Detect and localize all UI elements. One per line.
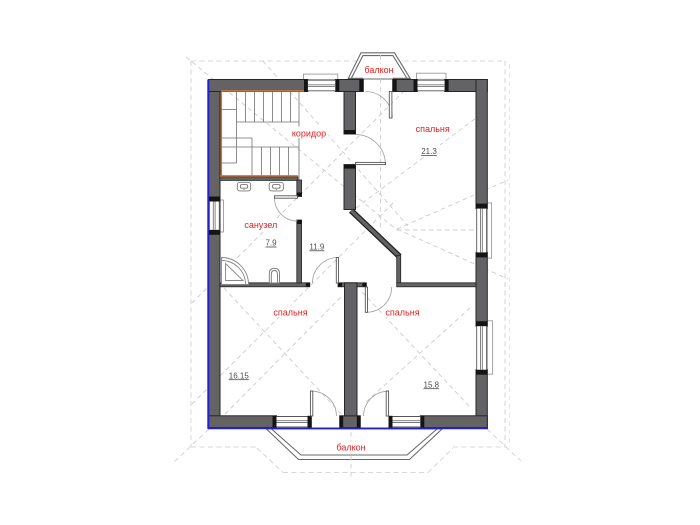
svg-text:балкон: балкон bbox=[364, 65, 393, 75]
svg-text:спальня: спальня bbox=[273, 307, 307, 317]
svg-text:11.9: 11.9 bbox=[309, 242, 325, 251]
svg-text:21.3: 21.3 bbox=[421, 147, 437, 156]
svg-text:спальня: спальня bbox=[385, 308, 419, 318]
svg-text:коридор: коридор bbox=[292, 128, 326, 138]
svg-text:санузел: санузел bbox=[244, 220, 277, 230]
svg-text:7.9: 7.9 bbox=[265, 239, 277, 248]
svg-text:балкон: балкон bbox=[336, 442, 365, 452]
svg-text:спальня: спальня bbox=[416, 124, 450, 134]
svg-text:15.8: 15.8 bbox=[424, 380, 440, 389]
svg-text:16.15: 16.15 bbox=[229, 371, 250, 380]
